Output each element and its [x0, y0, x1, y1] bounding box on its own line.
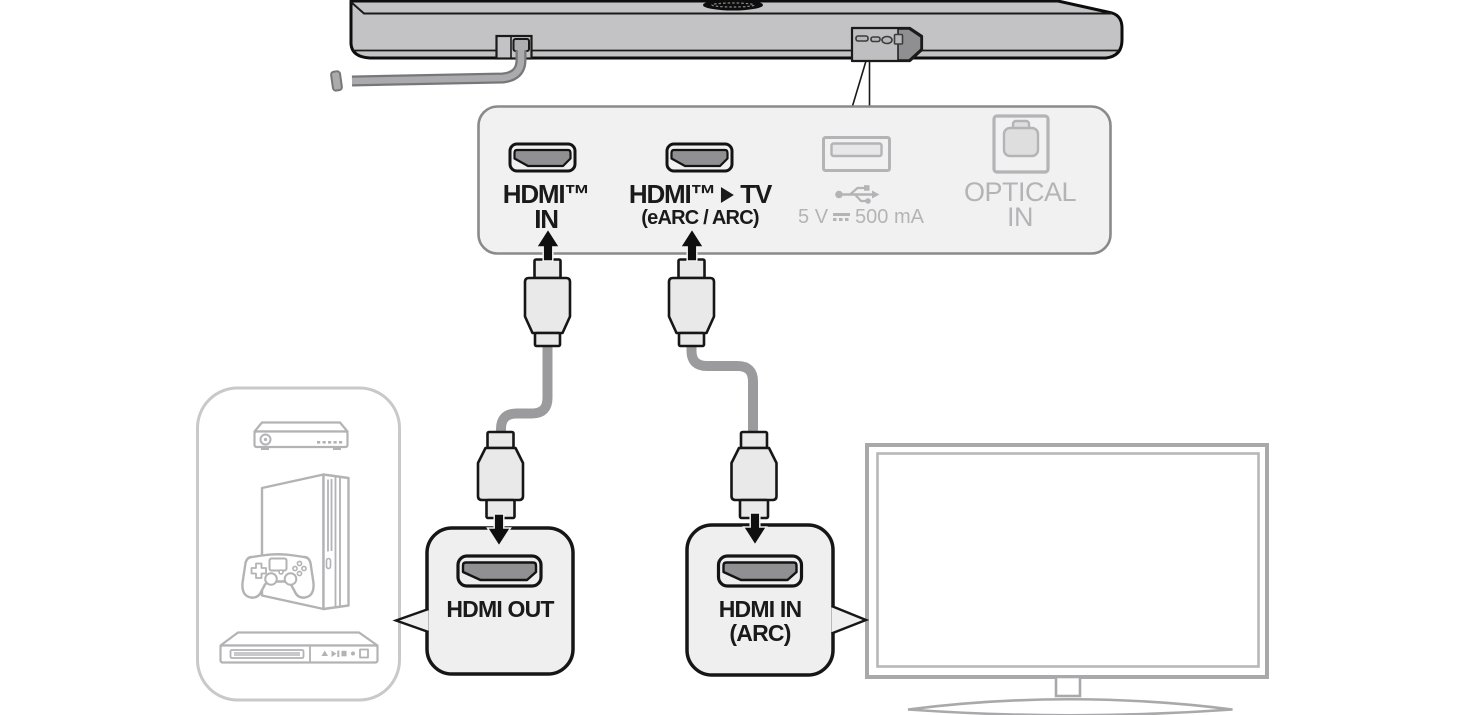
hdmi-tv-label-line1: HDMI™ TV [629, 182, 771, 207]
dc-symbol-icon [833, 213, 850, 221]
optical-label-line2: IN [964, 205, 1076, 230]
hdmi-tv-port-icon [667, 144, 732, 171]
dvd-player-icon [221, 633, 378, 663]
usb-label-suffix: 500 mA [855, 207, 924, 227]
hdmi-in-port-label: HDMI™ IN [503, 182, 589, 232]
rear-ports-recess [852, 28, 922, 61]
hdmi-in-arc-label: HDMI IN (ARC) [719, 597, 802, 645]
hdmi-cable-left [501, 340, 548, 436]
source-devices-box [198, 388, 400, 700]
hdmi-tv-label-line2: (eARC / ARC) [629, 207, 771, 230]
hdmi-in-port-icon [510, 144, 575, 171]
arrow-right-icon [721, 187, 734, 203]
hdmi-in-label-line2: IN [503, 207, 589, 232]
hdmi-connector-lower-left [478, 432, 523, 518]
hdmi-out-label: HDMI OUT [446, 597, 553, 622]
callout-lines [853, 61, 870, 106]
set-top-box-icon [255, 423, 348, 451]
soundbar-connection-diagram: HDMI™ IN HDMI™ TV (eARC / ARC) 5 V 500 m… [0, 0, 1465, 715]
tv-stand-base [908, 699, 1233, 715]
optical-port-icon [994, 116, 1048, 172]
power-plug [331, 71, 343, 91]
tv-stand-neck [1056, 677, 1080, 696]
hdmi-cable-right [692, 340, 754, 436]
soundbar-top-port [703, 0, 763, 11]
hdmi-out-port-icon [458, 556, 541, 586]
hdmi-tv-label-part1: HDMI™ [629, 182, 715, 207]
hdmi-connector-upper-left [525, 260, 570, 347]
hdmi-in-arc-label-line1: HDMI IN [719, 597, 802, 621]
tv [867, 445, 1267, 715]
usb-port-label: 5 V 500 mA [798, 207, 924, 227]
usb-label-prefix: 5 V [798, 207, 828, 227]
usb-port-icon [824, 138, 890, 171]
hdmi-tv-label-part2: TV [740, 182, 771, 207]
soundbar [331, 0, 1122, 106]
hdmi-connector-upper-right [669, 260, 714, 347]
hdmi-connector-lower-right [732, 432, 777, 518]
hdmi-tv-port-label: HDMI™ TV (eARC / ARC) [629, 182, 771, 230]
hdmi-in-arc-port-icon [719, 556, 802, 586]
hdmi-in-arc-label-line2: (ARC) [719, 621, 802, 645]
optical-port-label: OPTICAL IN [964, 180, 1076, 230]
hdmi-in-arc-pointer [832, 606, 867, 634]
